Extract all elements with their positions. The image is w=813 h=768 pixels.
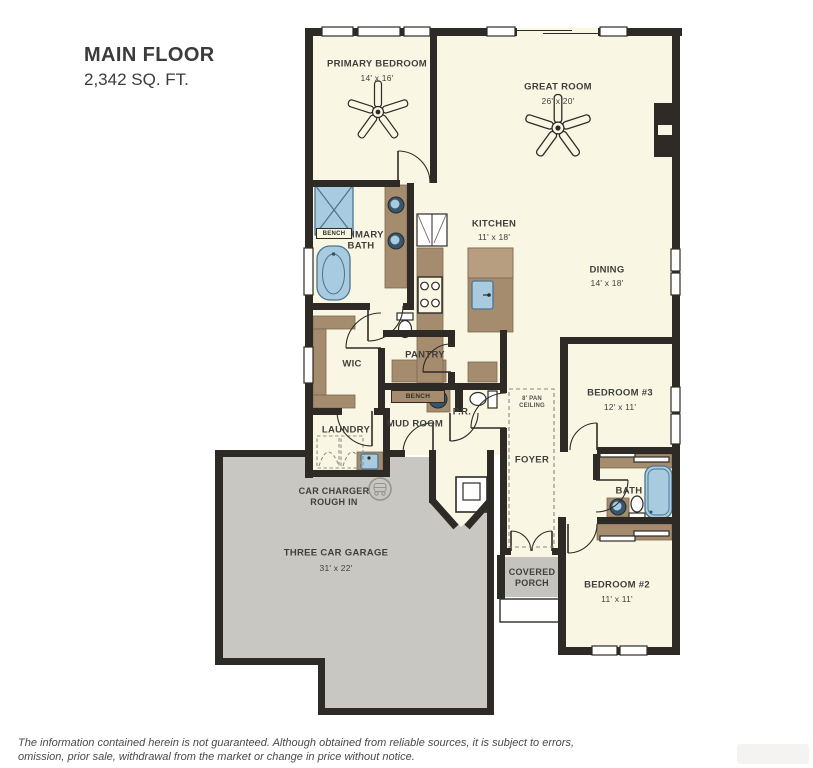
floor-plan-canvas <box>0 0 813 768</box>
bath-toilet-icon <box>629 496 645 520</box>
island-sink-icon <box>472 281 493 309</box>
stove-icon <box>418 277 442 313</box>
room-dims-bedroom2: 11' x 11' <box>601 594 633 604</box>
floor-plan-page: MAIN FLOOR 2,342 SQ. FT. PRIMARY BEDROOM… <box>0 0 813 768</box>
title-block: MAIN FLOOR 2,342 SQ. FT. <box>84 44 215 90</box>
room-label-bedroom3: BEDROOM #3 <box>587 387 653 398</box>
room-dims-great-room: 26' x 20' <box>542 96 575 106</box>
butler-counter <box>468 362 497 382</box>
watermark <box>737 744 809 764</box>
shower-bench-label: BENCH <box>316 228 352 239</box>
island-seating <box>468 248 513 278</box>
room-label-covered-porch: COVERED PORCH <box>502 567 562 589</box>
room-label-laundry: LAUNDRY <box>322 424 370 435</box>
refrigerator-icon <box>417 214 447 246</box>
disclaimer-line1: The information contained herein is not … <box>18 736 678 750</box>
sliding-door-icon <box>517 28 598 36</box>
room-dims-dining: 14' x 18' <box>591 278 624 288</box>
room-dims-kitchen: 11' x 18' <box>478 232 510 242</box>
bath-tub-icon <box>645 466 672 518</box>
wic-shelf-bottom <box>313 395 355 408</box>
car-charger-label: CAR CHARGER ROUGH IN <box>284 486 384 508</box>
room-label-primary-bedroom: PRIMARY BEDROOM <box>327 58 427 69</box>
room-label-wic: WIC <box>342 358 361 369</box>
bathtub-icon <box>317 246 350 300</box>
room-label-powder-room: P.R. <box>453 406 471 417</box>
mud-bench-label: BENCH <box>391 390 445 403</box>
wic-shelf-top <box>313 316 355 329</box>
room-dims-bedroom3: 12' x 11' <box>604 402 636 412</box>
room-dims-primary-bedroom: 14' x 16' <box>361 73 394 83</box>
room-label-bedroom2: BEDROOM #2 <box>584 579 650 590</box>
room-label-bath: BATH <box>616 485 643 496</box>
room-label-foyer: FOYER <box>515 454 549 465</box>
wic-shelf-side <box>313 329 326 395</box>
room-label-mud-room: MUD ROOM <box>387 418 443 429</box>
kitchen-counter <box>417 248 443 383</box>
floor-layer <box>222 32 676 708</box>
room-dims-garage: 31' x 22' <box>320 563 353 573</box>
plan-area: 2,342 SQ. FT. <box>84 70 215 90</box>
room-label-great-room: GREAT ROOM <box>524 81 592 92</box>
foyer-ceiling-note: 8' PAN CEILING <box>512 396 552 410</box>
room-label-dining: DINING <box>589 264 624 275</box>
room-label-kitchen: KITCHEN <box>472 218 516 229</box>
disclaimer: The information contained herein is not … <box>18 736 678 764</box>
plan-title: MAIN FLOOR <box>84 44 215 67</box>
room-label-pantry: PANTRY <box>405 349 445 360</box>
disclaimer-line2: omission, prior sale, withdrawal from th… <box>18 750 678 764</box>
room-label-garage: THREE CAR GARAGE <box>284 547 389 558</box>
